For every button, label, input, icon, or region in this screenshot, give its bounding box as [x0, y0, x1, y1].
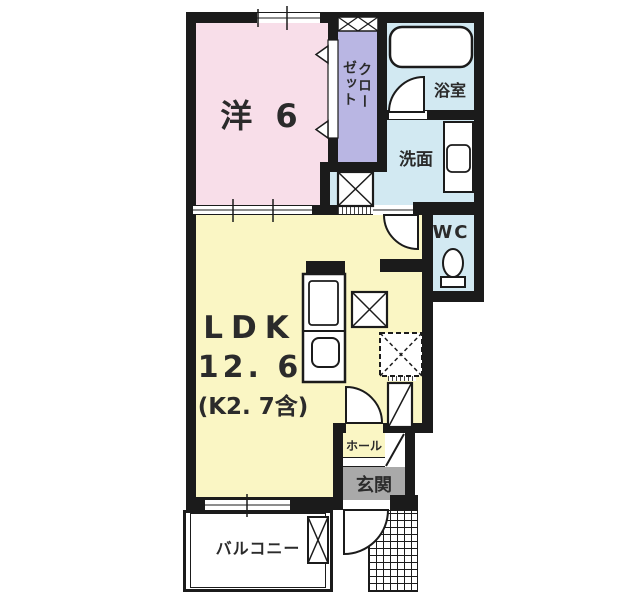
- room-closet-label-col2: ゼット: [339, 60, 359, 108]
- wall: [328, 23, 338, 45]
- room-washroom-label: 洗面: [386, 147, 446, 167]
- wall: [413, 202, 474, 215]
- window-bottom: [205, 500, 290, 510]
- window-top: [257, 13, 320, 23]
- room-ldk-area: 12. 6: [180, 351, 320, 383]
- wall: [474, 12, 484, 302]
- threshold-washroom-left: [338, 206, 373, 214]
- wall: [383, 423, 433, 433]
- wall: [186, 12, 196, 510]
- entrance-step: [343, 457, 385, 467]
- entrance-porch: [368, 510, 418, 592]
- room-entrance-label: 玄関: [343, 467, 405, 500]
- sliding-door: [193, 206, 312, 214]
- wall: [422, 302, 433, 433]
- threshold-kitchen: [388, 374, 416, 381]
- room-ldk-note: (K2. 7含): [173, 391, 333, 417]
- entrance-door-gap: [343, 500, 390, 510]
- wall: [380, 259, 422, 272]
- wall: [320, 162, 387, 172]
- wall: [325, 497, 343, 510]
- room-hall-label: ホール: [343, 433, 385, 457]
- door-threshold-bath: [389, 111, 427, 119]
- wall: [422, 291, 484, 302]
- room-bathroom-label: 浴室: [420, 79, 480, 99]
- folding-door: [328, 40, 338, 138]
- room-washroom-floor-ext: [330, 172, 387, 205]
- room-ldk-label: LDK: [180, 312, 320, 344]
- balcony-label: バルコニー: [193, 536, 323, 558]
- floorplan: 洋 6 クロー ゼット 浴室 洗面 WC LDK 12. 6 (K2. 7含) …: [0, 0, 640, 606]
- room-wc-label: WC: [421, 222, 481, 242]
- door-threshold-washroom: [373, 206, 413, 214]
- wall: [186, 12, 484, 23]
- room-western-label: 洋 6: [196, 23, 328, 205]
